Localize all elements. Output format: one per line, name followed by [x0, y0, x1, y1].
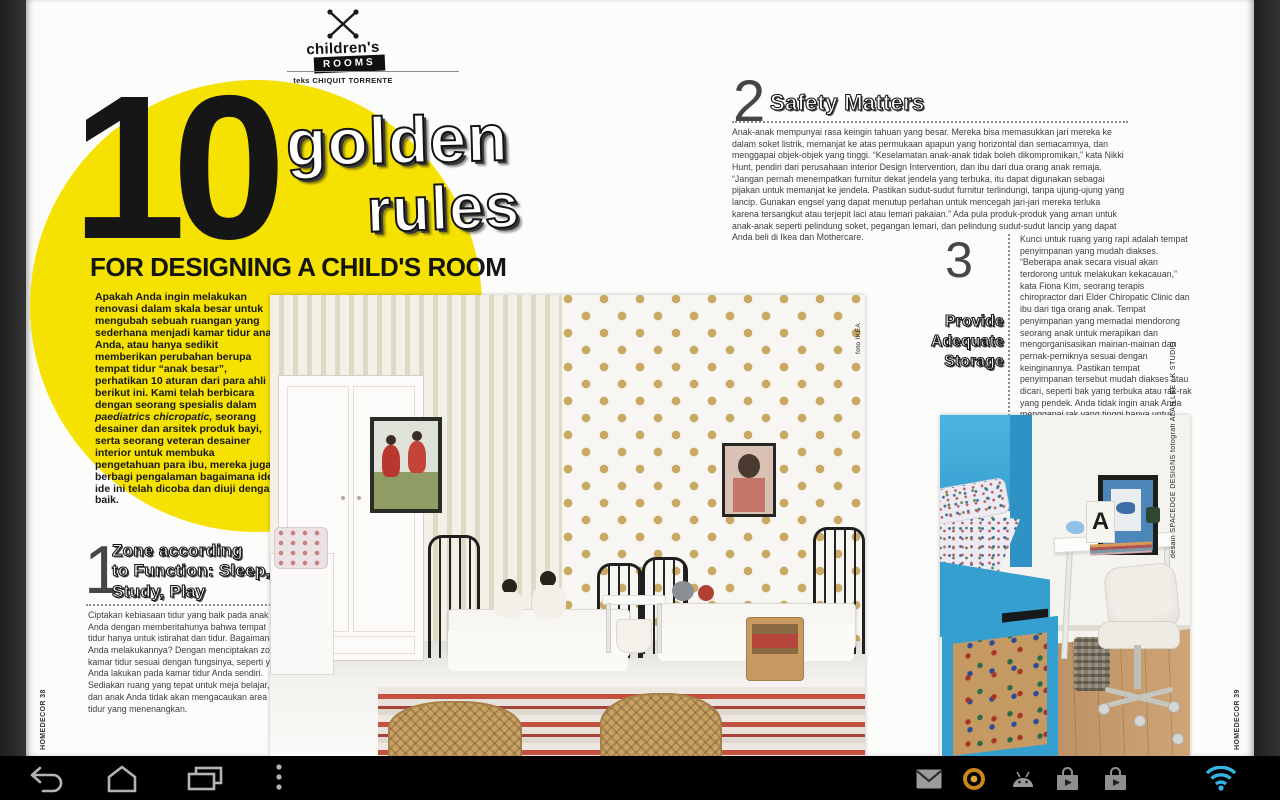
bird-toy	[1066, 521, 1084, 534]
gmail-notification-icon[interactable]	[916, 769, 942, 789]
rule-1-body: Ciptakan kebiasaan tidur yang baik pada …	[88, 610, 285, 715]
intro-text-italic: paediatrics chicropatic,	[95, 411, 212, 423]
android-system-bar: 6:13	[0, 756, 1280, 800]
wifi-status-icon[interactable]	[1206, 766, 1236, 791]
rule-2-body: Anak-anak mempunyai rasa keingin tahuan …	[732, 127, 1129, 244]
intro-paragraph: Apakah Anda ingin melakukan renovasi dal…	[95, 292, 278, 507]
recent-apps-button[interactable]	[186, 765, 224, 793]
low-cabinet	[270, 553, 334, 675]
rule-2-heading: Safety Matters	[770, 90, 925, 116]
rule-1-heading-line: Zone according	[112, 541, 271, 561]
caster-wheel	[1098, 703, 1110, 715]
bird-art	[1116, 502, 1135, 514]
photo-credit-center: foto IKEA	[855, 300, 862, 354]
menu-overflow-button[interactable]	[274, 763, 284, 793]
plush-toy	[698, 585, 714, 601]
rule-3-heading: Provide Adequate Storage	[880, 312, 1004, 372]
letter-card: A	[1086, 501, 1115, 543]
caster-wheel	[1168, 701, 1180, 713]
photo-kids-bedroom: foto IKEA	[270, 295, 865, 756]
doll-bed	[746, 617, 804, 681]
back-button[interactable]	[28, 765, 66, 793]
photo-blue-bed-room: A	[940, 415, 1190, 756]
logo-divider-line	[287, 71, 459, 72]
feature-title-word-golden: golden	[285, 99, 509, 181]
caster-wheel	[1172, 733, 1184, 745]
caster-wheel	[1134, 715, 1146, 727]
rule-3-heading-line: Storage	[880, 352, 1004, 372]
rule-1-heading-line: to Function: Sleep,	[112, 561, 271, 581]
dotted-divider	[732, 121, 1128, 123]
tablet-screen: children's ROOMS teks CHIQUIT TORRENTE 1…	[0, 0, 1280, 800]
rule-1-heading: Zone according to Function: Sleep, Study…	[112, 541, 271, 602]
feature-big-number: 10	[72, 84, 272, 252]
play-store-notification-icon[interactable]	[1056, 767, 1079, 791]
framed-photo-left	[370, 417, 442, 513]
left-bezel-strip	[0, 0, 26, 756]
dotted-divider-vertical	[1008, 234, 1010, 432]
rule-1-heading-line: Study, Play	[112, 582, 271, 602]
play-store-notification-icon[interactable]	[1104, 767, 1127, 791]
update-circle-notification-icon[interactable]	[962, 767, 986, 791]
wicker-chair	[388, 701, 522, 756]
home-button[interactable]	[103, 764, 141, 793]
page-folio-right: HOMEDECOR 39	[1234, 678, 1241, 750]
framed-photo-right	[722, 443, 776, 517]
dotted-divider	[86, 604, 274, 606]
crossed-pins-icon	[322, 6, 364, 42]
android-robot-notification-icon[interactable]	[1011, 770, 1035, 788]
bedside-table	[602, 595, 664, 659]
floral-basket	[274, 527, 328, 569]
rule-3-heading-line: Adequate	[880, 332, 1004, 352]
plush-toy	[672, 581, 694, 601]
photo-credit-right: desain SPACEDGE DESIGNS fotografi ALAN L…	[1170, 386, 1177, 558]
intro-text-a: Apakah Anda ingin melakukan renovasi dal…	[95, 291, 277, 411]
feature-subtitle: FOR DESIGNING A CHILD'S ROOM	[90, 252, 506, 283]
chair-column	[1134, 645, 1141, 689]
rule-3-heading-line: Provide	[880, 312, 1004, 332]
feature-title-word-rules: rules	[321, 171, 521, 249]
rule-3-body-text: Kunci untuk ruang yang rapi adalah tempa…	[1020, 234, 1192, 444]
wicker-chair	[600, 693, 722, 756]
article-byline: teks CHIQUIT TORRENTE	[279, 76, 407, 85]
right-bezel-strip	[1254, 0, 1280, 756]
intro-text-b: seorang desainer dan arsitek produk bayi…	[95, 411, 276, 507]
open-storage-drawer	[942, 616, 1058, 756]
rule-3-number: 3	[914, 238, 1004, 283]
toys-in-drawer	[953, 632, 1047, 756]
magazine-spread[interactable]: children's ROOMS teks CHIQUIT TORRENTE 1…	[26, 0, 1254, 756]
small-plant	[1146, 507, 1160, 523]
page-folio-left: HOMEDECOR 38	[40, 678, 47, 750]
